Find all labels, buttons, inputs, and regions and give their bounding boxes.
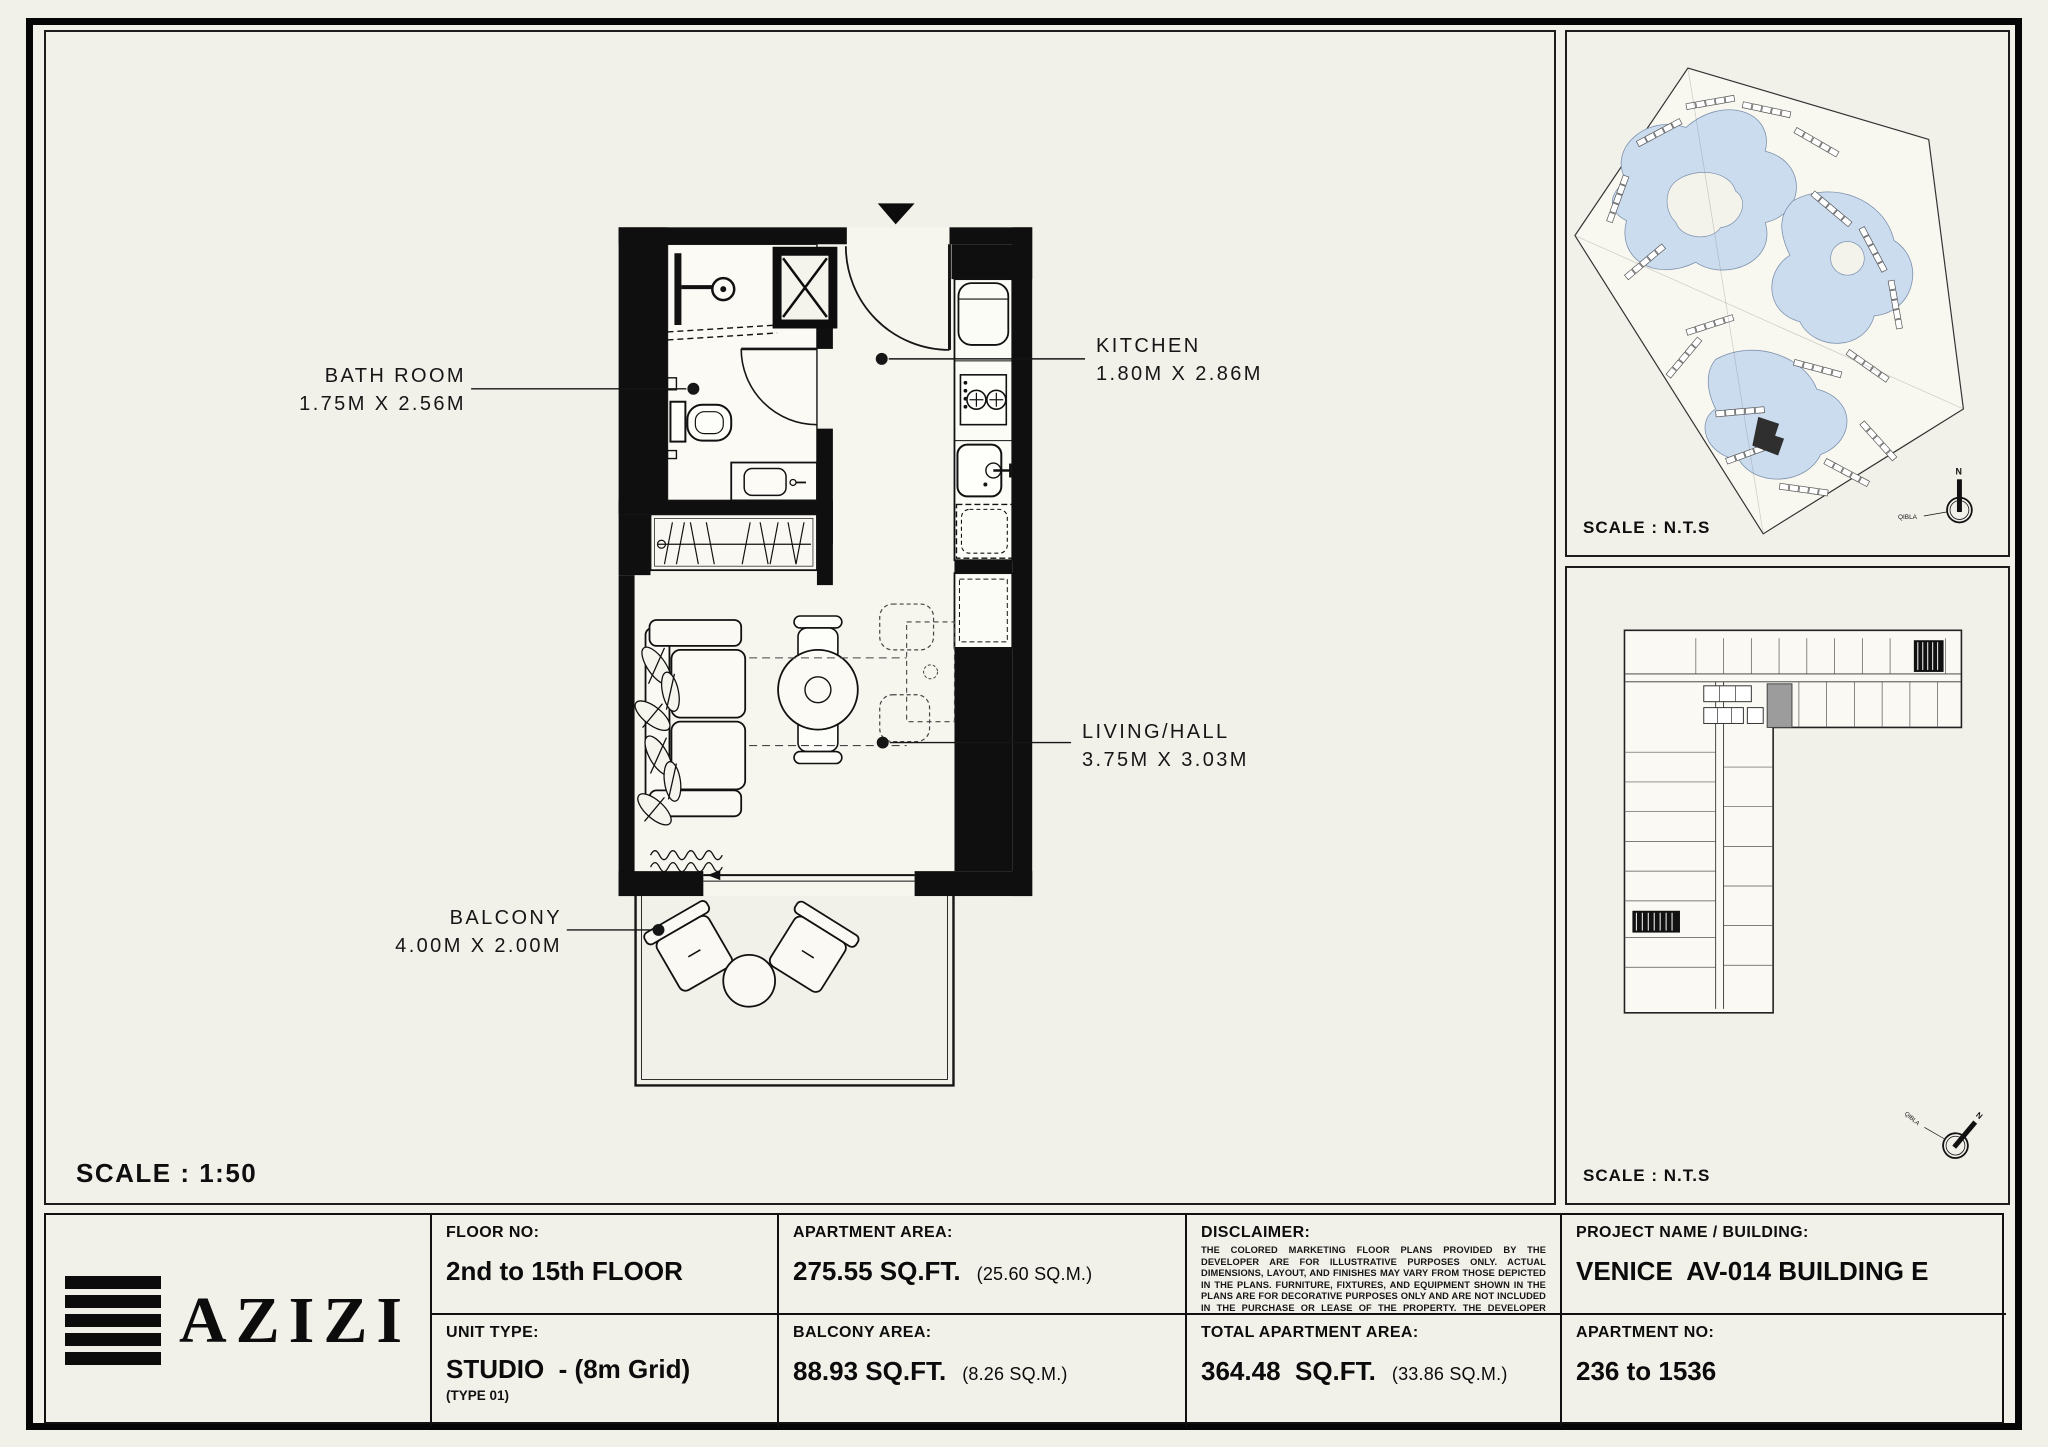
- apartment-area-metric: (25.60 SQ.M.): [977, 1264, 1093, 1284]
- project-label: PROJECT NAME / BUILDING:: [1576, 1224, 1992, 1242]
- apartment-no-label: APARTMENT NO:: [1576, 1324, 1992, 1342]
- key-compass-n: N: [1974, 1110, 1984, 1121]
- site-plan-drawing: N QIBLA: [1567, 32, 2008, 555]
- unit-type-cell: UNIT TYPE: STUDIO - (8m Grid) (TYPE 01): [432, 1315, 779, 1426]
- site-compass-n: N: [1955, 466, 1961, 476]
- vanity-sink: [731, 463, 817, 501]
- key-compass-icon: N QIBLA: [1902, 1075, 1992, 1163]
- balcony-area-metric: (8.26 SQ.M.): [962, 1364, 1067, 1384]
- floorplan-sheet: BATH ROOM 1.75M X 2.56M KITCHEN 1.80M X …: [0, 0, 2048, 1447]
- kitchen-name: KITCHEN: [1096, 332, 1376, 360]
- floor-no-value: 2nd to 15th FLOOR: [446, 1256, 763, 1287]
- total-area-label: TOTAL APARTMENT AREA:: [1201, 1324, 1546, 1342]
- balcony-label: BALCONY 4.00M X 2.00M: [322, 904, 562, 960]
- disclaimer-cell: DISCLAIMER: THE COLORED MARKETING FLOOR …: [1187, 1215, 1562, 1315]
- total-area-cell: TOTAL APARTMENT AREA: 364.48 SQ.FT.(33.8…: [1187, 1315, 1562, 1426]
- main-scale-label: SCALE : 1:50: [76, 1158, 257, 1189]
- kitchen-counter: [954, 279, 1012, 648]
- total-area-value: 364.48 SQ.FT.: [1201, 1356, 1376, 1386]
- key-compass-qibla: QIBLA: [1903, 1111, 1920, 1127]
- balcony-dims: 4.00M X 2.00M: [322, 932, 562, 960]
- living-name: LIVING/HALL: [1082, 718, 1382, 746]
- wardrobe: [651, 514, 817, 570]
- floor-no-cell: FLOOR NO: 2nd to 15th FLOOR: [432, 1215, 779, 1315]
- floor-plan-panel: BATH ROOM 1.75M X 2.56M KITCHEN 1.80M X …: [44, 30, 1556, 1205]
- key-plan-drawing: N QIBLA: [1567, 568, 2008, 1203]
- site-scale-label: SCALE : N.T.S: [1583, 518, 1710, 538]
- floor-no-label: FLOOR NO:: [446, 1224, 763, 1242]
- apartment-area-label: APARTMENT AREA:: [793, 1224, 1171, 1242]
- living-dims: 3.75M X 3.03M: [1082, 746, 1382, 774]
- total-area-metric: (33.86 SQ.M.): [1392, 1364, 1508, 1384]
- shaft: [777, 251, 833, 324]
- entry-arrow-icon: [878, 203, 915, 224]
- living-label: LIVING/HALL 3.75M X 3.03M: [1082, 718, 1382, 774]
- apartment-no-cell: APARTMENT NO: 236 to 1536: [1562, 1315, 2006, 1426]
- bathroom-name: BATH ROOM: [206, 362, 466, 390]
- balcony-furniture: [642, 899, 860, 1007]
- apartment-no-value: 236 to 1536: [1576, 1356, 1992, 1387]
- site-plan-panel: N QIBLA SCALE : N.T.S: [1565, 30, 2010, 557]
- balcony-name: BALCONY: [322, 904, 562, 932]
- title-block: AZIZI FLOOR NO: 2nd to 15th FLOOR APARTM…: [44, 1213, 2004, 1424]
- project-cell: PROJECT NAME / BUILDING: VENICE AV-014 B…: [1562, 1215, 2006, 1315]
- unit-type-sub: (TYPE 01): [446, 1388, 763, 1403]
- balcony-area-label: BALCONY AREA:: [793, 1324, 1171, 1342]
- kitchen-dims: 1.80M X 2.86M: [1096, 360, 1376, 388]
- azizi-logo-icon: [65, 1276, 161, 1365]
- unit-type-label: UNIT TYPE:: [446, 1324, 763, 1342]
- key-scale-label: SCALE : N.T.S: [1583, 1166, 1710, 1186]
- floor-plan-drawing: [46, 32, 1554, 1203]
- key-building-outline: [1624, 630, 1961, 1013]
- disclaimer-text: THE COLORED MARKETING FLOOR PLANS PROVID…: [1201, 1245, 1546, 1315]
- kitchen-label: KITCHEN 1.80M X 2.86M: [1096, 332, 1376, 388]
- balcony-area-cell: BALCONY AREA: 88.93 SQ.FT.(8.26 SQ.M.): [779, 1315, 1187, 1426]
- key-plan-panel: N QIBLA SCALE : N.T.S: [1565, 566, 2010, 1205]
- brand-name: AZIZI: [179, 1283, 411, 1359]
- apartment-area-cell: APARTMENT AREA: 275.55 SQ.FT.(25.60 SQ.M…: [779, 1215, 1187, 1315]
- project-value: VENICE AV-014 BUILDING E: [1576, 1256, 1992, 1287]
- key-highlight-unit: [1767, 684, 1792, 728]
- azizi-logo: AZIZI: [46, 1215, 432, 1426]
- balcony-area-value: 88.93 SQ.FT.: [793, 1356, 946, 1386]
- disclaimer-label: DISCLAIMER:: [1201, 1224, 1546, 1242]
- site-compass-icon: N QIBLA: [1898, 466, 1972, 522]
- site-compass-qibla: QIBLA: [1898, 514, 1918, 521]
- bathroom-dims: 1.75M X 2.56M: [206, 390, 466, 418]
- unit-type-value: STUDIO - (8m Grid): [446, 1354, 763, 1385]
- apartment-area-value: 275.55 SQ.FT.: [793, 1256, 961, 1286]
- bathroom-label: BATH ROOM 1.75M X 2.56M: [206, 362, 466, 418]
